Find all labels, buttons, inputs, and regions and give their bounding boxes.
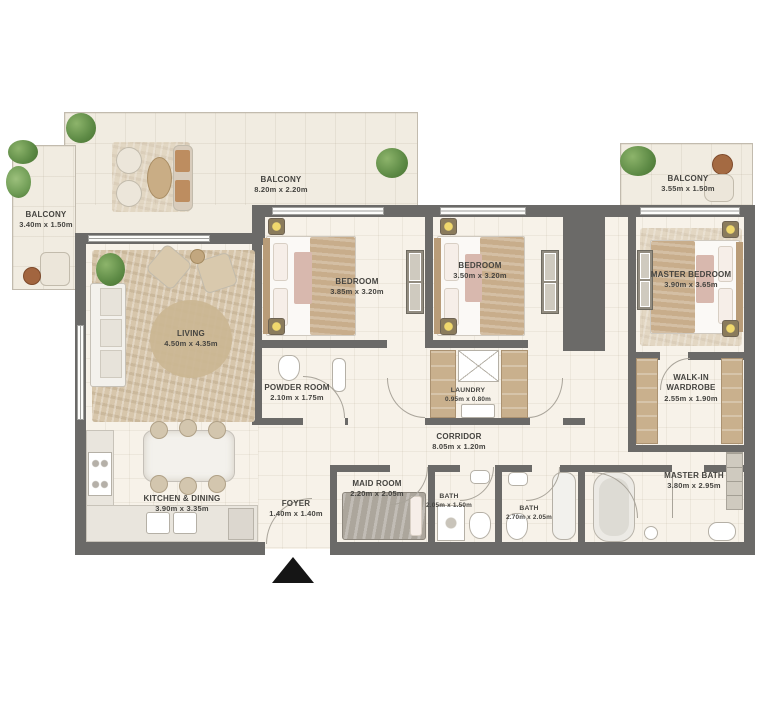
plant xyxy=(96,253,125,286)
room-label-master-bedroom: MASTER BEDROOM 3.90m x 3.65m xyxy=(635,270,747,290)
room-label-balcony-left: BALCONY 3.40m x 1.50m xyxy=(4,210,88,230)
balcony-chair xyxy=(116,180,142,207)
balcony-chair xyxy=(116,147,142,174)
kitchen-sink xyxy=(146,512,170,534)
wall xyxy=(330,542,755,555)
wall xyxy=(425,418,530,425)
room-dims: 2.05m x 1.50m xyxy=(414,502,484,510)
wall xyxy=(345,418,348,425)
bedside-lamp xyxy=(722,221,739,238)
sofa-cushion xyxy=(175,180,190,202)
window xyxy=(77,325,84,420)
room-dims: 4.50m x 4.35m xyxy=(164,339,217,349)
window xyxy=(272,207,384,215)
pillow xyxy=(718,288,733,324)
entrance-arrow xyxy=(272,557,314,583)
balcony-stool xyxy=(23,267,41,285)
closet-shelves xyxy=(501,350,528,418)
room-label-walk-in-wardrobe: WALK-IN WARDROBE 2.55m x 1.90m xyxy=(662,373,720,404)
plant xyxy=(8,140,38,164)
room-label-master-bath: MASTER BATH 3.80m x 2.95m xyxy=(639,471,749,491)
room-dims: 2.55m x 1.90m xyxy=(662,394,720,404)
room-name: KITCHEN & DINING xyxy=(121,494,243,504)
balcony-lounge-chair xyxy=(40,252,70,286)
room-name: FOYER xyxy=(260,499,332,509)
room-label-foyer: FOYER 1.40m x 1.40m xyxy=(260,499,332,519)
room-label-maid-room: MAID ROOM 2.20m x 2.05m xyxy=(331,479,423,499)
bed-throw xyxy=(294,252,312,304)
room-label-balcony-right: BALCONY 3.55m x 1.50m xyxy=(633,174,743,194)
room-name: LIVING xyxy=(164,329,217,339)
room-dims: 3.90m x 3.35m xyxy=(121,504,243,514)
sink xyxy=(508,472,528,486)
room-name: BALCONY xyxy=(633,174,743,184)
balcony-side-table xyxy=(712,154,733,175)
room-label-living: LIVING 4.50m x 4.35m xyxy=(164,329,217,349)
balcony-table xyxy=(147,157,172,199)
room-name: BEDROOM xyxy=(311,277,403,287)
stove xyxy=(88,452,112,496)
toilet xyxy=(278,355,300,381)
wall xyxy=(563,211,605,351)
sofa-cushion xyxy=(100,350,122,378)
wall xyxy=(628,445,744,452)
bedside-lamp xyxy=(268,318,285,335)
room-label-bath-2: BATH 2.70m x 2.05m xyxy=(492,505,566,522)
sofa-cushion xyxy=(100,319,122,347)
room-dims: 0.95m x 0.80m xyxy=(434,396,502,404)
plant xyxy=(66,113,96,143)
wardrobe xyxy=(541,250,559,314)
room-label-kitchen-dining: KITCHEN & DINING 3.90m x 3.35m xyxy=(121,494,243,514)
wall xyxy=(262,340,387,348)
wall xyxy=(433,340,528,348)
room-dims: 8.05m x 1.20m xyxy=(404,442,514,452)
living-label-disc: LIVING 4.50m x 4.35m xyxy=(150,300,232,378)
room-dims: 3.55m x 1.50m xyxy=(633,184,743,194)
room-dims: 2.10m x 1.75m xyxy=(254,393,340,403)
wall xyxy=(744,205,755,555)
sofa-cushion xyxy=(100,288,122,316)
dining-chair xyxy=(179,419,197,437)
wall xyxy=(495,465,502,542)
window xyxy=(640,207,740,215)
toilet xyxy=(469,512,491,539)
room-name: MASTER BATH xyxy=(639,471,749,481)
room-dims: 1.40m x 1.40m xyxy=(260,509,332,519)
wall xyxy=(563,418,585,425)
floor-plan: BALCONY 3.40m x 1.50m BALCONY 8.20m x 2.… xyxy=(0,0,766,727)
plant xyxy=(376,148,408,178)
room-name: BATH xyxy=(414,493,484,502)
side-table xyxy=(190,249,205,264)
window xyxy=(440,207,526,215)
dining-chair xyxy=(208,421,226,439)
dining-chair xyxy=(208,475,226,493)
wall xyxy=(252,418,303,425)
closet-shelves xyxy=(430,350,456,418)
wardrobe xyxy=(406,250,424,314)
room-label-corridor: CORRIDOR 8.05m x 1.20m xyxy=(404,432,514,452)
toilet xyxy=(708,522,736,541)
room-name: MAID ROOM xyxy=(331,479,423,489)
wardrobe-shelves xyxy=(636,358,658,444)
linen-closet xyxy=(458,350,499,382)
room-name: BALCONY xyxy=(4,210,88,220)
room-name: BEDROOM xyxy=(434,261,526,271)
room-label-balcony-top: BALCONY 8.20m x 2.20m xyxy=(226,175,336,195)
bedside-lamp xyxy=(440,318,457,335)
room-dims: 3.50m x 3.20m xyxy=(434,271,526,281)
room-dims: 2.20m x 2.05m xyxy=(331,489,423,499)
sink xyxy=(644,526,658,540)
room-name: POWDER ROOM xyxy=(254,383,340,393)
blanket xyxy=(480,237,524,335)
room-dims: 3.90m x 3.65m xyxy=(635,280,747,290)
room-dims: 3.40m x 1.50m xyxy=(4,220,88,230)
plant xyxy=(6,166,31,198)
washing-machine xyxy=(461,404,495,418)
room-label-powder-room: POWDER ROOM 2.10m x 1.75m xyxy=(254,383,340,403)
wall xyxy=(435,465,460,472)
kitchen-sink xyxy=(173,512,197,534)
bedside-lamp xyxy=(268,218,285,235)
room-dims: 3.80m x 2.95m xyxy=(639,481,749,491)
bedside-lamp xyxy=(722,320,739,337)
room-name: BALCONY xyxy=(226,175,336,185)
wardrobe-shelves xyxy=(721,358,743,444)
room-dims: 8.20m x 2.20m xyxy=(226,185,336,195)
wall xyxy=(578,465,585,542)
pillow xyxy=(273,243,288,281)
room-label-bedroom-2: BEDROOM 3.50m x 3.20m xyxy=(434,261,526,281)
room-dims: 2.70m x 2.05m xyxy=(492,514,566,522)
window xyxy=(88,235,210,242)
room-name: BATH xyxy=(492,505,566,514)
dining-chair xyxy=(150,475,168,493)
room-dims: 3.85m x 3.20m xyxy=(311,287,403,297)
wall xyxy=(75,542,265,555)
sofa-cushion xyxy=(175,150,190,172)
plant xyxy=(620,146,656,176)
shower xyxy=(437,505,465,541)
wall xyxy=(628,352,636,452)
room-name: LAUNDRY xyxy=(434,387,502,396)
dining-chair xyxy=(150,421,168,439)
bedside-lamp xyxy=(440,218,457,235)
room-name: CORRIDOR xyxy=(404,432,514,442)
wall xyxy=(337,465,390,472)
room-name: MASTER BEDROOM xyxy=(635,270,747,280)
dining-chair xyxy=(179,477,197,495)
wall xyxy=(425,211,433,348)
room-label-laundry: LAUNDRY 0.95m x 0.80m xyxy=(434,387,502,404)
wall xyxy=(560,465,578,472)
room-label-bedroom-1: BEDROOM 3.85m x 3.20m xyxy=(311,277,403,297)
room-name: WALK-IN WARDROBE xyxy=(662,373,720,394)
room-label-bath-1: BATH 2.05m x 1.50m xyxy=(414,493,484,510)
